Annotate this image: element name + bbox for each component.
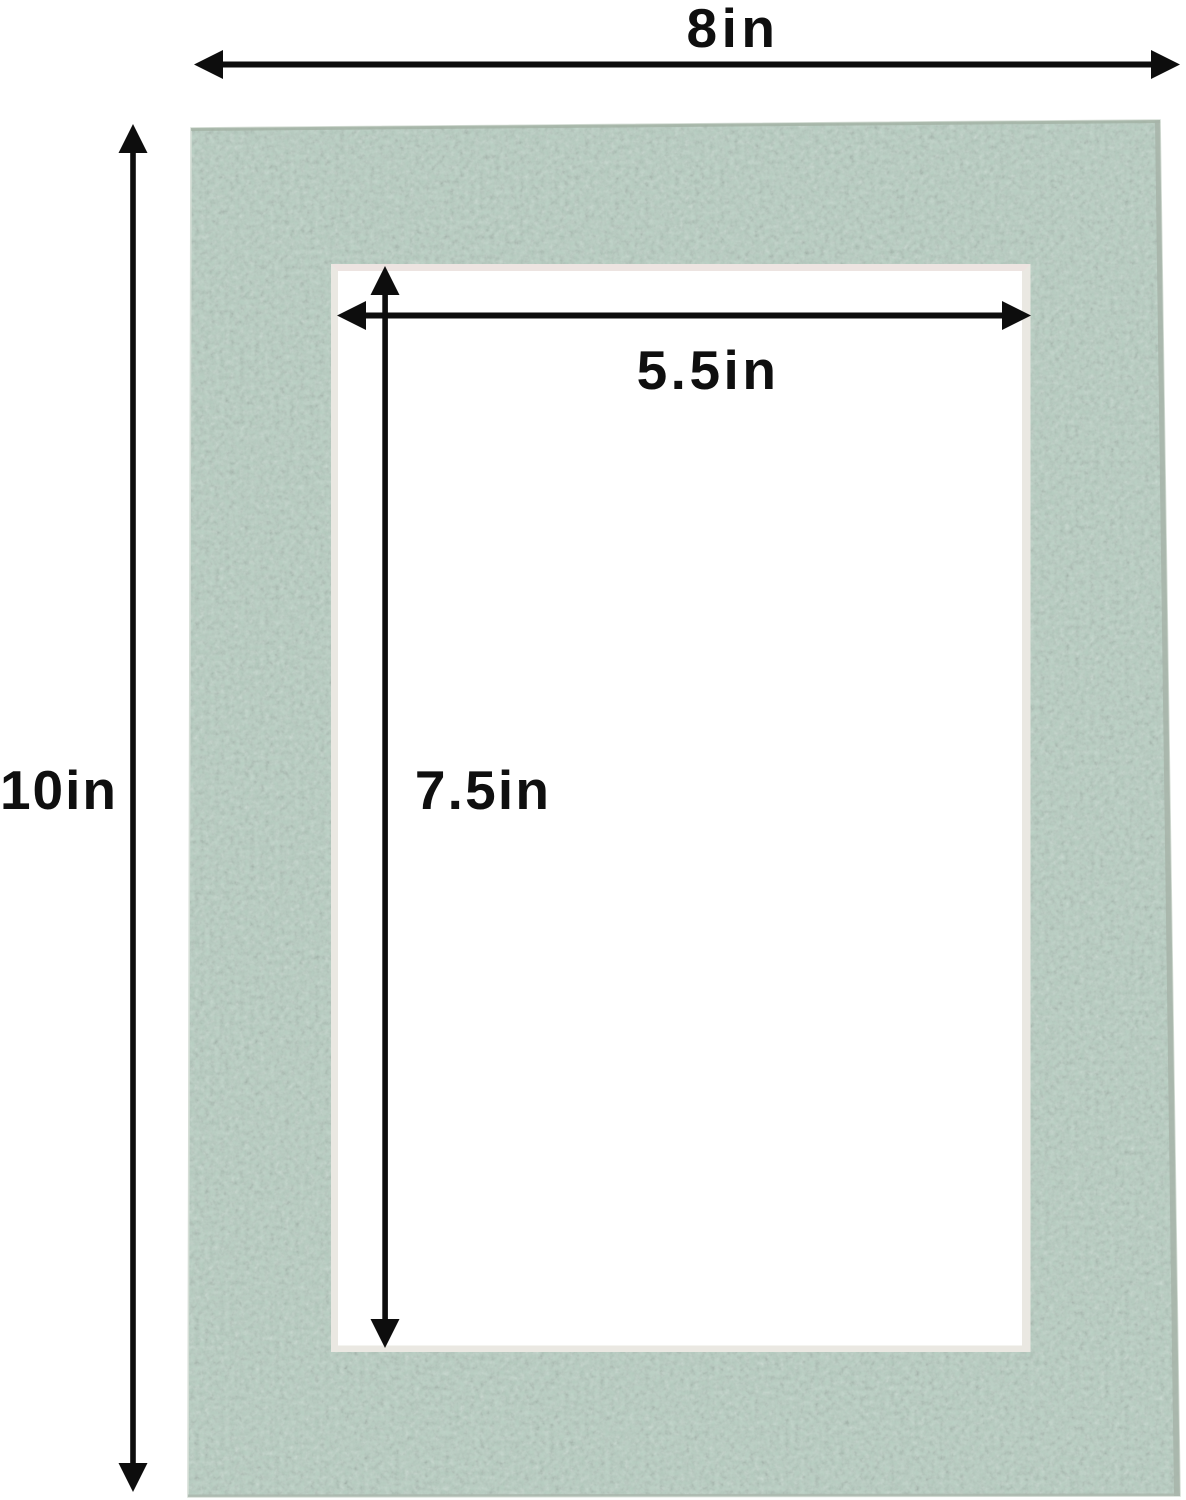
svg-text:5.5in: 5.5in <box>637 339 780 401</box>
svg-text:7.5in: 7.5in <box>415 759 551 821</box>
svg-text:10in: 10in <box>0 759 118 821</box>
svg-text:8in: 8in <box>687 0 780 59</box>
